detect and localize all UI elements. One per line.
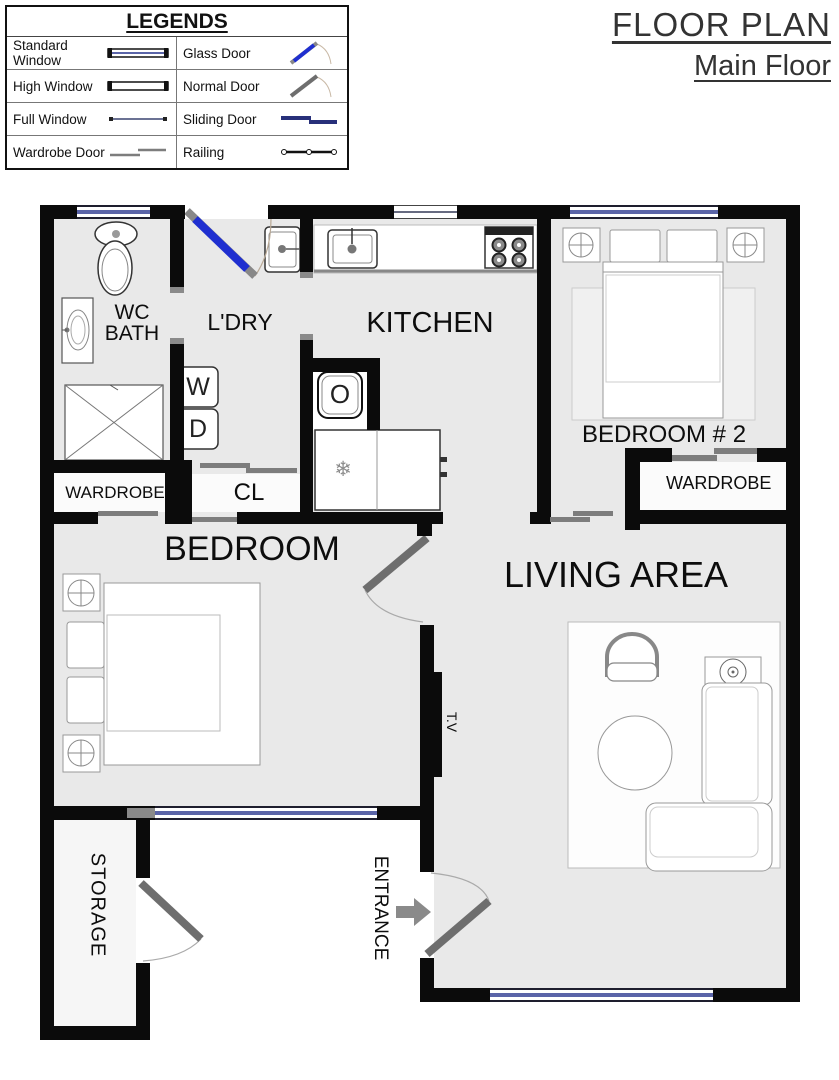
label-wc: WC (92, 302, 172, 323)
armchair-icon (607, 634, 657, 681)
jamb-kitchen-door-bottom (300, 334, 313, 340)
wall-entrance-1 (420, 820, 434, 872)
wall-left (40, 205, 54, 1040)
legend-item-full-window: Full Window (7, 103, 177, 136)
wardrobe-door-main-b (192, 517, 237, 522)
legend-label: Sliding Door (183, 112, 257, 127)
wall-storage-right-1 (136, 820, 150, 878)
glass-door-icon (277, 40, 341, 66)
legend-label: Standard Window (13, 38, 106, 68)
legend-label: Glass Door (183, 46, 251, 61)
label-oven: O (318, 379, 362, 410)
wall-storage-bottom (40, 1026, 150, 1040)
floor-plan: WC BATH L'DRY KITCHEN BEDROOM # 2 WARDRO… (40, 205, 800, 1040)
window-kitchen (394, 205, 457, 219)
closet-door-b (246, 468, 297, 473)
window-living (490, 988, 713, 1002)
legend-grid: Standard Window Glass Door High Window (7, 37, 347, 168)
label-dryer: D (178, 415, 218, 444)
wall-right (786, 205, 800, 1002)
wall-bedroom-door-jamb (417, 524, 432, 536)
glass-door (187, 211, 271, 276)
jamb-wc-door-bottom (170, 338, 184, 344)
normal-door-icon (277, 73, 341, 99)
closet-door-a (200, 463, 250, 468)
jamb-bedroom-window (127, 808, 155, 818)
window-bedroom (155, 806, 377, 820)
wall-wardrobe2-top-east (757, 448, 786, 462)
high-window-icon (106, 73, 170, 99)
vanity-sink-icon (62, 298, 93, 363)
railing-icon (277, 139, 341, 165)
legend-box: LEGENDS Standard Window Glass Door (5, 5, 349, 170)
stove-icon (485, 227, 533, 268)
wall-oven-nook-top (300, 358, 380, 372)
entrance-arrow-icon (396, 898, 431, 926)
kitchen-sink-icon (328, 228, 377, 268)
window-bedroom2 (570, 205, 718, 219)
label-bedroom2: BEDROOM # 2 (582, 421, 742, 449)
wall-wardrobe2-bottom (625, 510, 800, 524)
wardrobe-door-icon (106, 139, 170, 165)
drawing-title-line1: FLOOR PLAN (612, 6, 831, 44)
wall-oven-nook-right (367, 372, 380, 430)
label-wc-bath: WC BATH (92, 302, 172, 344)
wall-kitchen-right (537, 219, 551, 512)
bedroom2-bed (563, 228, 764, 420)
label-living-area: LIVING AREA (496, 554, 736, 596)
legend-item-normal-door: Normal Door (177, 70, 347, 103)
legend-title: LEGENDS (7, 7, 347, 37)
shower-icon (65, 385, 163, 460)
legend-label: Full Window (13, 112, 87, 127)
wardrobe-door-main-a (98, 511, 158, 516)
wall-top-4 (457, 205, 570, 219)
legend-item-standard-window: Standard Window (7, 37, 177, 70)
legend-item-railing: Railing (177, 136, 347, 168)
bedroom2-entry-door-b (550, 517, 590, 522)
drawing-title: FLOOR PLAN Main Floor (612, 6, 831, 83)
full-window-icon (106, 106, 170, 132)
round-table-icon (598, 716, 672, 790)
entrance-door (396, 873, 489, 954)
living-area-furniture (568, 622, 780, 871)
legend-label: Railing (183, 145, 224, 160)
wardrobe2-sliding-door-b (672, 455, 717, 461)
wall-storage-right-2 (136, 963, 150, 1040)
wall-wc-ldry-upper (170, 219, 184, 287)
wall-kitchen-right-foot (530, 512, 551, 524)
label-bath: BATH (92, 323, 172, 344)
label-tv: T.V (444, 712, 460, 732)
drawing-title-line2: Main Floor (612, 50, 831, 83)
bedroom-bed (63, 574, 260, 772)
wall-ldry-kitchen-upper (300, 219, 313, 272)
label-storage: STORAGE (86, 853, 109, 957)
label-washer: W (178, 373, 218, 402)
floor-plan-page: LEGENDS Standard Window Glass Door (0, 0, 839, 1080)
legend-item-high-window: High Window (7, 70, 177, 103)
wall-entrance-2 (420, 958, 434, 1002)
sliding-door-icon (277, 106, 341, 132)
legend-item-glass-door: Glass Door (177, 37, 347, 70)
jamb-wc-door-top (170, 287, 184, 293)
storage-door (141, 883, 201, 961)
label-wardrobe-main: WARDROBE (62, 483, 168, 503)
window-wc (77, 205, 150, 219)
legend-label: Normal Door (183, 79, 260, 94)
wall-bedroom-bottom-2 (377, 806, 434, 820)
label-bedroom: BEDROOM (152, 530, 352, 569)
bedroom-door (365, 538, 427, 622)
wall-top-3 (268, 205, 394, 219)
wall-wardrobe-top (54, 460, 170, 473)
bedroom2-entry-door-a (573, 511, 613, 516)
tv-unit (430, 672, 442, 777)
wall-bedroom-top-east (237, 512, 443, 524)
label-wardrobe2: WARDROBE (666, 473, 766, 494)
wall-bedroom-top-west (54, 512, 98, 524)
label-kitchen: KITCHEN (350, 307, 510, 340)
jamb-kitchen-door-top (300, 272, 313, 278)
standard-window-icon (106, 40, 170, 66)
toilet-icon (95, 222, 137, 295)
legend-item-sliding-door: Sliding Door (177, 103, 347, 136)
legend-item-wardrobe-door: Wardrobe Door (7, 136, 177, 168)
wall-living-bottom-2 (713, 988, 800, 1002)
legend-label: Wardrobe Door (13, 145, 105, 160)
label-laundry: L'DRY (200, 309, 280, 336)
label-entrance: ENTRANCE (369, 856, 391, 961)
freezer-snowflake-icon: ❄ (328, 455, 358, 485)
wall-top-2 (150, 205, 185, 219)
label-closet: CL (224, 479, 274, 507)
legend-label: High Window (13, 79, 93, 94)
wall-wardrobe2-top-west (640, 448, 672, 462)
